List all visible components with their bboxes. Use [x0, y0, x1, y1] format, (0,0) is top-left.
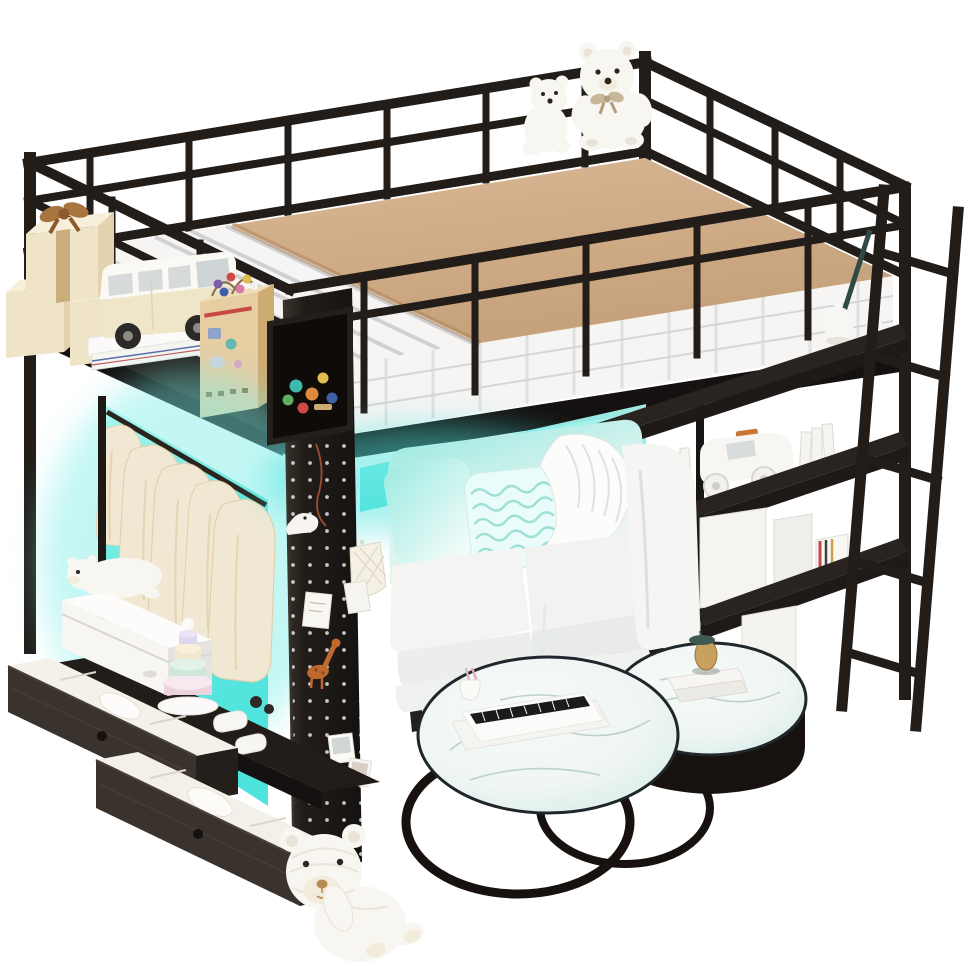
teapot — [822, 307, 854, 339]
garment — [207, 499, 275, 682]
paper-card-2 — [344, 581, 370, 614]
drawer-knob — [97, 731, 107, 741]
paper-card-1 — [302, 592, 331, 629]
product-photo: Black metal loft bed with LED lights, wa… — [0, 0, 970, 971]
scene: Black metal loft bed with LED lights, wa… — [0, 0, 970, 971]
drawer-knob — [193, 829, 203, 839]
pegboard-holes — [288, 434, 362, 870]
toy-cubby — [270, 310, 350, 442]
